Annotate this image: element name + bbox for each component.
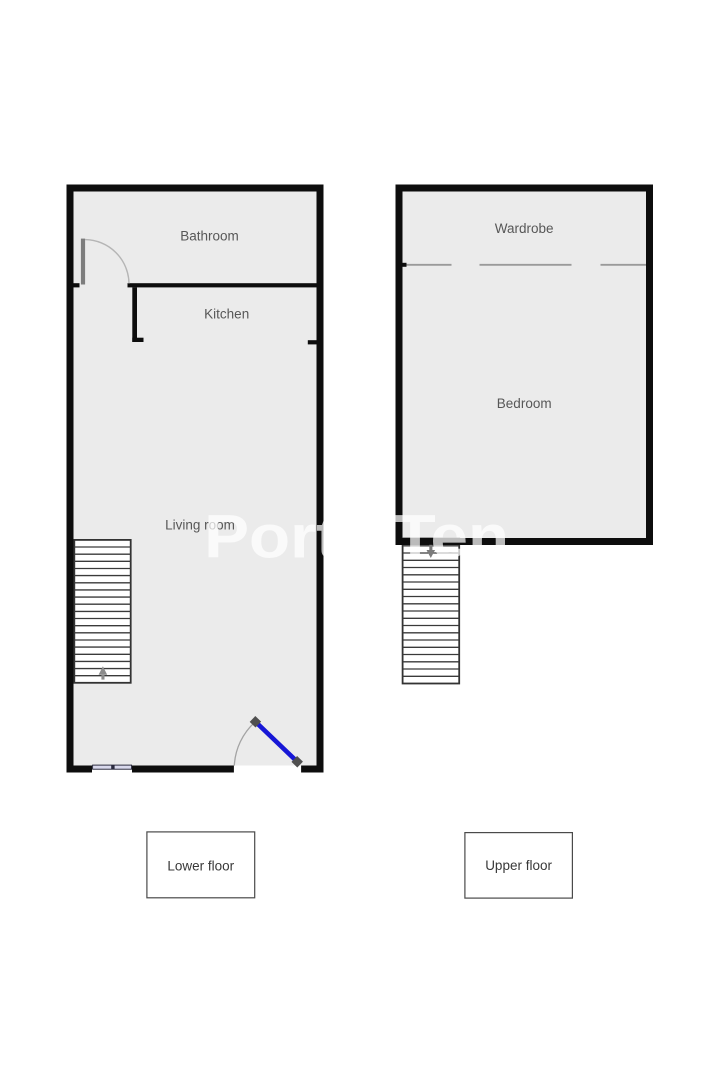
svg-text:Wardrobe: Wardrobe: [495, 221, 554, 236]
svg-text:Kitchen: Kitchen: [204, 306, 249, 321]
svg-text:Lower floor: Lower floor: [167, 859, 234, 874]
svg-text:Porta Ten: Porta Ten: [204, 501, 509, 570]
svg-text:Bedroom: Bedroom: [497, 396, 552, 411]
svg-text:Upper floor: Upper floor: [485, 858, 552, 873]
svg-text:Bathroom: Bathroom: [180, 228, 239, 243]
